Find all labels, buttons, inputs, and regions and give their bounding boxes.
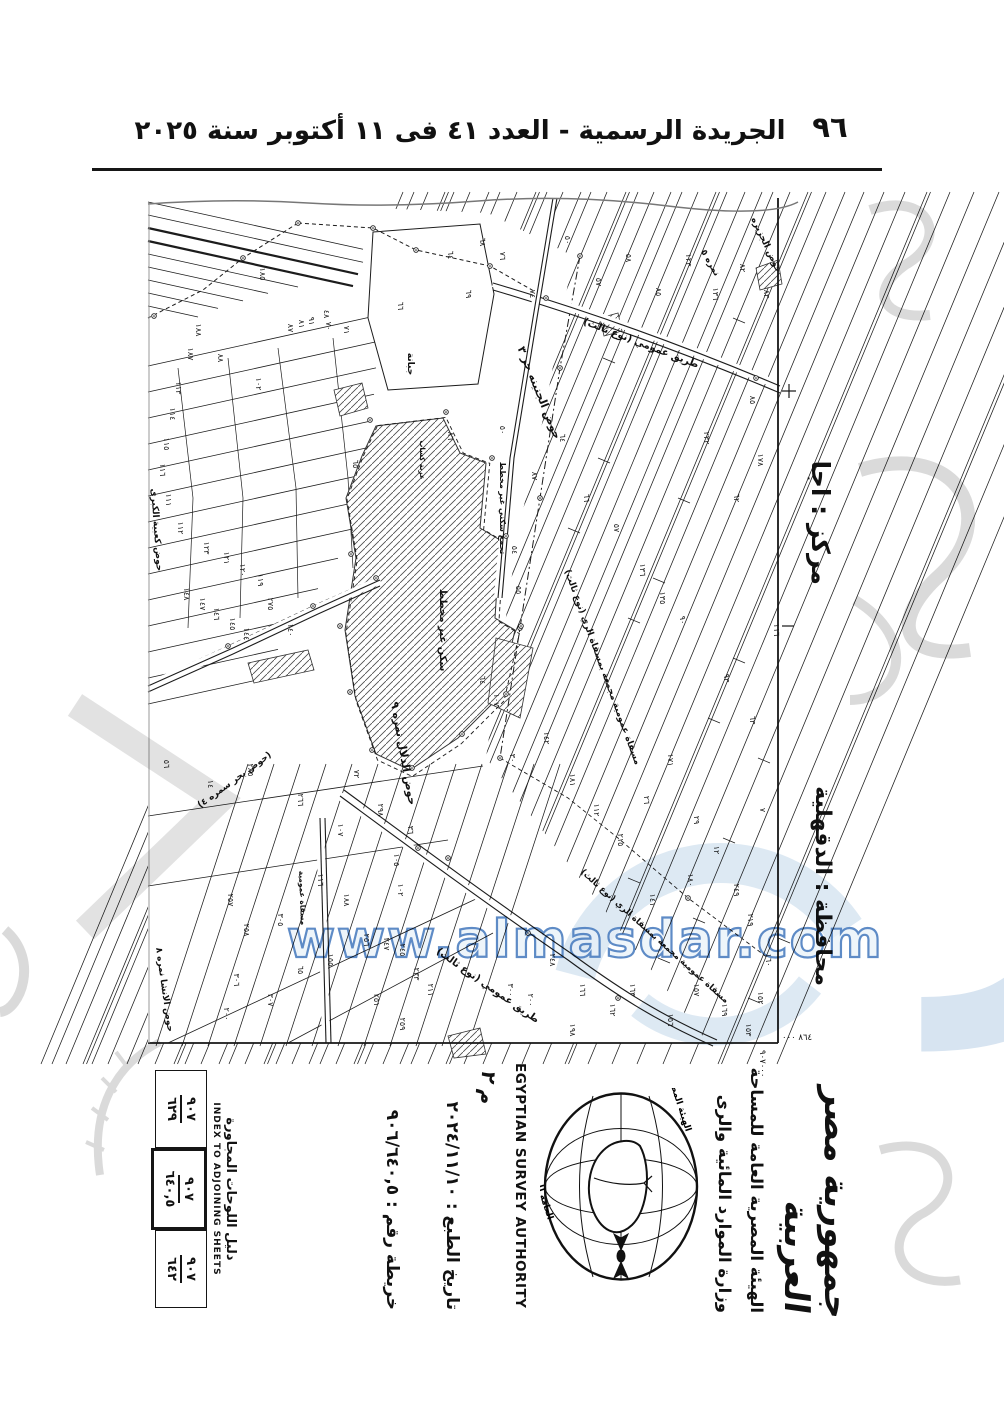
parcel-number: ١٦٦ [578,984,587,997]
parcel-number: ١٦٩ [720,1004,729,1017]
parcel-number: ١٩٨ [568,1024,577,1038]
egypt-landmass [589,1141,652,1232]
parcel-number: ١٥٧ [692,984,701,998]
parcel-number: ١٨٨ [194,324,203,338]
parcel-number: ٢٥٨ [242,924,251,938]
parcel-number: ٩٠ [678,616,687,625]
parcel-number: ١٤٨ [182,588,191,602]
parcel-number: ٤٨ [322,310,331,319]
parcel-number: ٥٤ [510,546,519,555]
parcel-number: ١٧١ [666,754,675,767]
parcel-number: ١١٣ [174,382,183,396]
emblem-ornament [614,1234,628,1278]
ministry-name-ar: وزارة الموارد المائية والرى [704,1075,734,1313]
parcel-number: ٦٨ [478,238,487,247]
cemetery-parcel [368,224,494,390]
parcel-number: ١٨٨ [342,894,351,908]
parcel-number: ١١٦ [316,874,325,887]
parcel-number: ١١٢ [176,522,185,535]
parcel-number: ١٤٤ [242,628,251,641]
parcel-number: ١٦٣ [628,984,637,998]
index-sheet-cell: ٩٠٧٦٢٩ [155,1070,207,1148]
parcel-number: ٧٢ [352,770,361,779]
parcel-number: ١٢ [712,846,721,855]
parcel-number: ٨٢ [738,264,747,273]
parcel-number: ١٨٧ [186,348,195,362]
parcel-number: ٨٧ [286,324,295,333]
parcel-number: ٢١١ [426,984,435,997]
parcel-number: ١٢٠ [238,564,247,577]
parcel-number: ١٦٠ [764,954,773,967]
parcel-number: ٢٥٦ [362,934,371,947]
parcel-number: ٣٠٦ [232,974,241,987]
parcel-number: ٦٥ [351,460,360,469]
parcel-number: ٢٥٩ [398,1018,407,1031]
parcel-number: ٧٤ [528,290,537,299]
parcel-number: ٣٦ [406,826,415,835]
parcel-number: ٢٨٥ [246,764,255,777]
parcel-number: ٢٠٠ [222,1008,231,1021]
index-sheet-cell: ٩٠٧٦٤٠,٥ [151,1148,207,1230]
parcel-number: ٢٤٩ [732,884,741,897]
parcel-number: ٥٥ [514,586,523,595]
map-canvas: حوض الجزيرهنمره ٥طريق عمومي (نوع ثالث)حو… [148,198,798,1058]
index-adjoining-sheets: دليل اللوحات المجاورة INDEX TO ADJOINING… [144,1068,238,1310]
parcel-number: ٦٣ [748,716,757,725]
parcel-number: ١١٩ [256,574,265,587]
parcel-number: ١٤١ [648,894,657,907]
parcel-number: ٣٠ [508,754,517,763]
handwritten-annotation: م ٢ [459,1050,502,1108]
parcel-number: ١٤٦ [212,608,221,621]
parcel-number: ١٨١ [568,774,577,787]
country-calligraphy: جمهورية مصر العربية [776,1051,856,1322]
parcel-number: ٦٤ [446,251,455,260]
parcel-number: ٨٥ [654,288,663,297]
page-number: ٩٦ [795,110,865,144]
parcel-number: ١٥٥ [326,954,335,967]
parcel-number: ٢٣٢ [702,432,711,445]
parcel-number: ٨٦ [446,432,455,441]
parcel-number: ١٥٣ [744,1024,753,1038]
parcel-number: ١١٢ [592,804,601,817]
parcel-number: ١٥٢ [756,992,765,1005]
parcel-number: ٦٦ [396,302,405,311]
parcel-number: ١١١ [164,494,173,507]
parcel-number: ٥٠ [498,426,507,435]
parcel-number: ٢٩٨ [376,804,385,818]
parcel-number: ٢٩ [692,816,701,825]
parcel-number: ٨٨ [216,354,225,363]
parcel-number: ٥٨ [624,254,633,263]
cadastral-map: حوض الجزيرهنمره ٥طريق عمومي (نوع ثالث)حو… [148,198,798,1058]
survey-authority-emblem: الهيئة المصرية العامة للمساحة [540,1088,702,1285]
parcel-number: ١٨٥ [258,268,267,281]
parcel-number: ١٣٥ [658,592,667,605]
parcel-number: ١٤٧ [198,598,207,612]
parcel-number: ١١٤ [168,408,177,421]
governorate-label: محافظة : الدقهلية [797,806,835,986]
parcel-number: ٧١ [342,326,351,335]
parcel-number: ٢٧٥ [266,598,275,611]
gazette-page: الجريدة الرسمية - العدد ٤١ فى ١١ أكتوبر … [0,0,1004,1418]
authority-name-ar: الهيئة المصرية العامة للمساحة [736,1075,766,1313]
parcel-number: ١٤٠ [286,624,295,637]
parcel-number: ٥٦ [162,760,171,769]
parcel-number: ٢٤٨ [548,954,557,968]
parcel-number: ٦٤ [558,434,567,443]
parcel-number: ٩١ [307,317,316,326]
parcel-number: ٢١٩ [746,914,755,927]
parcel-number: ٣٠٧ [266,994,275,1008]
parcel-number: ٢١٥ [616,834,625,847]
parcel-number: ١١٦ [158,464,167,477]
parcel-number: ٣٠٠ [506,984,515,997]
parcel-number: ١٠٧ [492,694,501,708]
parcel-number: ٢٥١ [372,994,381,1007]
index-sheet-cell: ٩٠٧٦٤٢ [155,1230,207,1308]
area-label: سكن غير مخطط [437,589,448,672]
area-label: عزبة كساب [418,440,426,480]
parcel-number: ١٨٠ [686,874,695,887]
parcel-number: ١٣٦ [711,288,720,301]
parcel-number: ٦٤ [478,676,487,685]
parcel-number: ٨٣ [762,290,771,299]
parcel-number: ١٠٢ [254,378,263,391]
header-rule [92,168,882,171]
parcel-number: ٦٦ [582,494,591,503]
parcel-number: ٨٥ [748,396,757,405]
parcel-number: ٨١ [297,320,306,329]
parcel-number: ١٤ [206,780,215,789]
parcel-number: ٢٦ [642,796,651,805]
parcel-number: ٦٢ [732,494,741,503]
parcel-number: ٥٠ [563,236,572,245]
parcel-number: ١١٥ [162,438,171,451]
parcel-number: ٨٧ [530,472,539,481]
parcel-number: ٢٤٧ [382,938,391,952]
parcel-number: ١٠٧ [336,824,345,838]
parcel-number: ١٠٥ [392,854,401,867]
parcel-number: ٢٠٠ [526,994,535,1007]
parcel-number: ١٥٦ [666,1014,675,1027]
parcel-number: ١٦٢ [608,1004,617,1017]
parcel-number: ٥٧ [594,278,603,287]
grid-easting: ٨٦٤ ٠٠٠ [782,1033,812,1043]
parcel-number: ٧٦ [498,252,507,261]
parcel-number: ١٢١ [222,552,231,565]
parcel-number: ٦٥ [296,966,305,975]
parcel-number: ٦٩ [464,290,473,299]
parcel-number: ٢٥٧ [226,894,235,908]
index-title-en: INDEX TO ADJOINING SHEETS [209,1068,222,1310]
parcel-number: ٢٤٥ [398,944,407,957]
parcel-number: ١٢٣ [202,542,211,556]
area-label: مسقاة عمومية [297,870,308,925]
index-title-ar: دليل اللوحات المجاورة [222,1068,238,1310]
parcel-number: ٧ [758,808,767,813]
parcel-number: ١٧٨ [756,454,765,468]
area-label: تجمع سكني غير مخطط [498,462,507,555]
parcel-number: ٧٠ [324,322,333,331]
print-date: تاريخ الطبع : ٢٠٢٤/١١/١٠ [422,1072,462,1310]
parcel-number: ١٤٢ [542,732,551,745]
parcel-number: ١٤٥ [228,618,237,631]
parcel-number: ١٣٦ [638,564,647,577]
parcel-number: ٢٣٣ [412,968,421,982]
parcel-number: ١٠٢ [396,884,405,897]
parcel-number: ٣٠٥ [276,914,285,927]
parcel-number: ١٢٣ [684,254,693,268]
index-sheet-cells: ٩٠٧٦٢٩٩٠٧٦٤٠,٥٩٠٧٦٤٢ [151,1068,207,1310]
parcel-number: ٢٦٦ [296,794,305,807]
parcel-number: ٥٧ [612,524,621,533]
map-number: خريطة رقم : ٩٠٦/٦٤٠,٥ [362,1072,402,1310]
area-label: جبانة [405,353,415,375]
authority-name-en: EGYPTIAN SURVEY AUTHORITY [504,1063,528,1305]
markaz-label: مركز : اجا [797,425,835,585]
page-title: الجريدة الرسمية - العدد ٤١ فى ١١ أكتوبر … [100,116,820,146]
parcel-number: ٩٣ [722,674,731,683]
parcel-number: ١١٦ [772,624,781,637]
